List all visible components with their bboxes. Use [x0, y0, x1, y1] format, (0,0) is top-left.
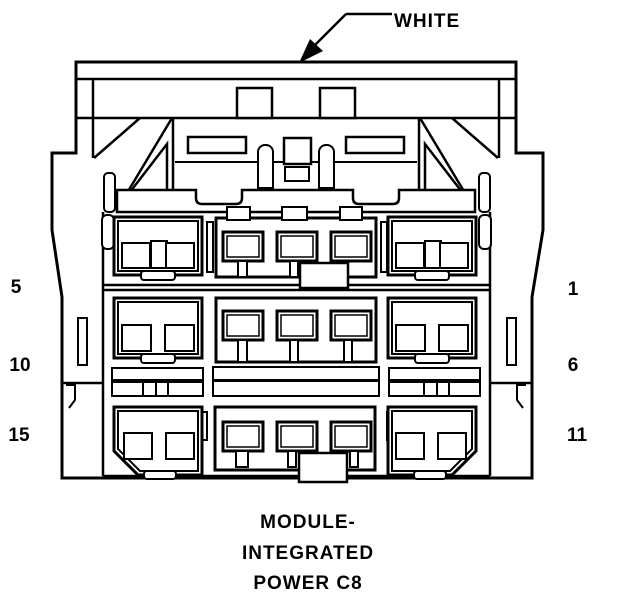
row2-center-section — [216, 298, 376, 362]
white-callout: WHITE — [299, 11, 460, 63]
row1-pill-left — [102, 215, 114, 249]
band-center-lower — [213, 381, 379, 396]
castellation — [340, 207, 362, 220]
cavity-bottom-notch — [141, 354, 175, 363]
row2-slot-right — [507, 318, 516, 365]
band-left-upper — [112, 368, 203, 380]
terminal-row-3 — [114, 407, 476, 482]
top-tab-right — [320, 88, 355, 118]
cavity-bottom-notch — [414, 471, 446, 479]
row1-lock-tab — [300, 263, 348, 288]
band-center-upper — [213, 367, 379, 380]
row1-cavity-left — [114, 217, 202, 280]
terminal-leg — [290, 261, 298, 277]
pin-label-6: 6 — [568, 355, 579, 376]
terminal-leg — [236, 451, 248, 467]
cavity-bottom-notch — [415, 354, 449, 363]
caption: MODULE- INTEGRATED POWER C8 — [242, 512, 374, 594]
row1-center-section — [216, 207, 376, 288]
row1-cavity-right — [388, 217, 476, 280]
connector-diagram-page: WHITE 5 10 15 1 6 11 MODULE- INTEGRATED … — [0, 0, 624, 600]
row1-narrow-slot-left — [207, 222, 213, 272]
row3-lock-tab — [299, 453, 347, 482]
row2-cavity-right — [388, 298, 476, 363]
band-right-upper — [389, 368, 480, 380]
caption-line-1: MODULE- — [260, 512, 356, 533]
latch-hook-right — [479, 173, 490, 212]
castellation — [227, 207, 250, 220]
row2-slot-left — [78, 318, 87, 365]
caption-line-3: POWER C8 — [253, 573, 362, 594]
row3-center-section — [215, 407, 375, 482]
cavity-bottom-notch — [144, 471, 176, 479]
guide-post-left — [258, 145, 273, 188]
keyway-slot-left — [188, 137, 246, 153]
terminal-leg — [290, 340, 298, 362]
pin-label-11: 11 — [567, 425, 588, 446]
castellation — [282, 207, 307, 220]
terminal-leg — [344, 340, 352, 362]
mid-band — [112, 367, 480, 396]
connector-color-label: WHITE — [394, 11, 460, 32]
guide-post-right — [319, 145, 334, 188]
terminal-leg — [288, 451, 296, 467]
row2-cavity-left — [114, 298, 202, 363]
terminal-leg — [350, 451, 358, 467]
center-key-lower — [285, 167, 309, 181]
terminal-leg — [238, 340, 247, 362]
pin-label-1: 1 — [568, 279, 579, 300]
row1-pill-right — [479, 215, 491, 249]
leader-arrowhead-icon — [299, 39, 323, 63]
terminal-row-1 — [114, 207, 476, 288]
band-right-lower — [389, 382, 480, 396]
latch-hook-left — [104, 173, 115, 212]
pin-label-5: 5 — [11, 277, 22, 298]
caption-line-2: INTEGRATED — [242, 543, 374, 564]
pin-label-15: 15 — [8, 425, 30, 446]
row1-narrow-slot-right — [381, 222, 387, 272]
cavity-bottom-notch — [415, 271, 449, 280]
top-tab-left — [237, 88, 272, 118]
terminal-row-2 — [114, 298, 476, 363]
connector-face-drawing: WHITE 5 10 15 1 6 11 MODULE- INTEGRATED … — [0, 0, 624, 600]
terminal-leg — [238, 261, 247, 277]
band-left-lower — [112, 382, 203, 396]
pin-label-10: 10 — [9, 355, 30, 376]
cavity-bottom-notch — [141, 271, 175, 280]
center-key-upper — [284, 138, 311, 164]
keyway-slot-right — [346, 137, 404, 153]
